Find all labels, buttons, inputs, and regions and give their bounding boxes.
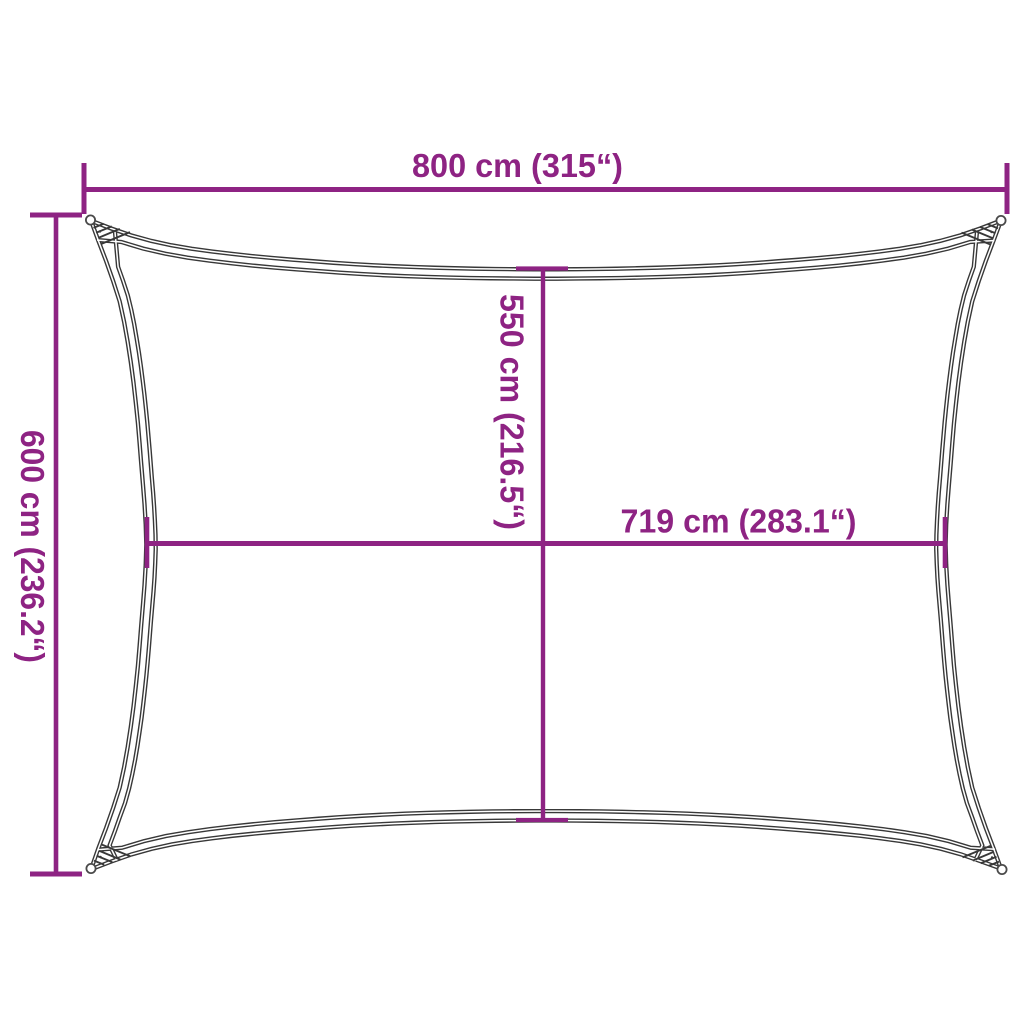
svg-text:600 cm (236.2“): 600 cm (236.2“) <box>13 430 50 663</box>
svg-text:550 cm (216.5“): 550 cm (216.5“) <box>493 294 530 530</box>
svg-text:719 cm (283.1“): 719 cm (283.1“) <box>621 504 857 541</box>
svg-text:800 cm (315“): 800 cm (315“) <box>412 148 623 185</box>
